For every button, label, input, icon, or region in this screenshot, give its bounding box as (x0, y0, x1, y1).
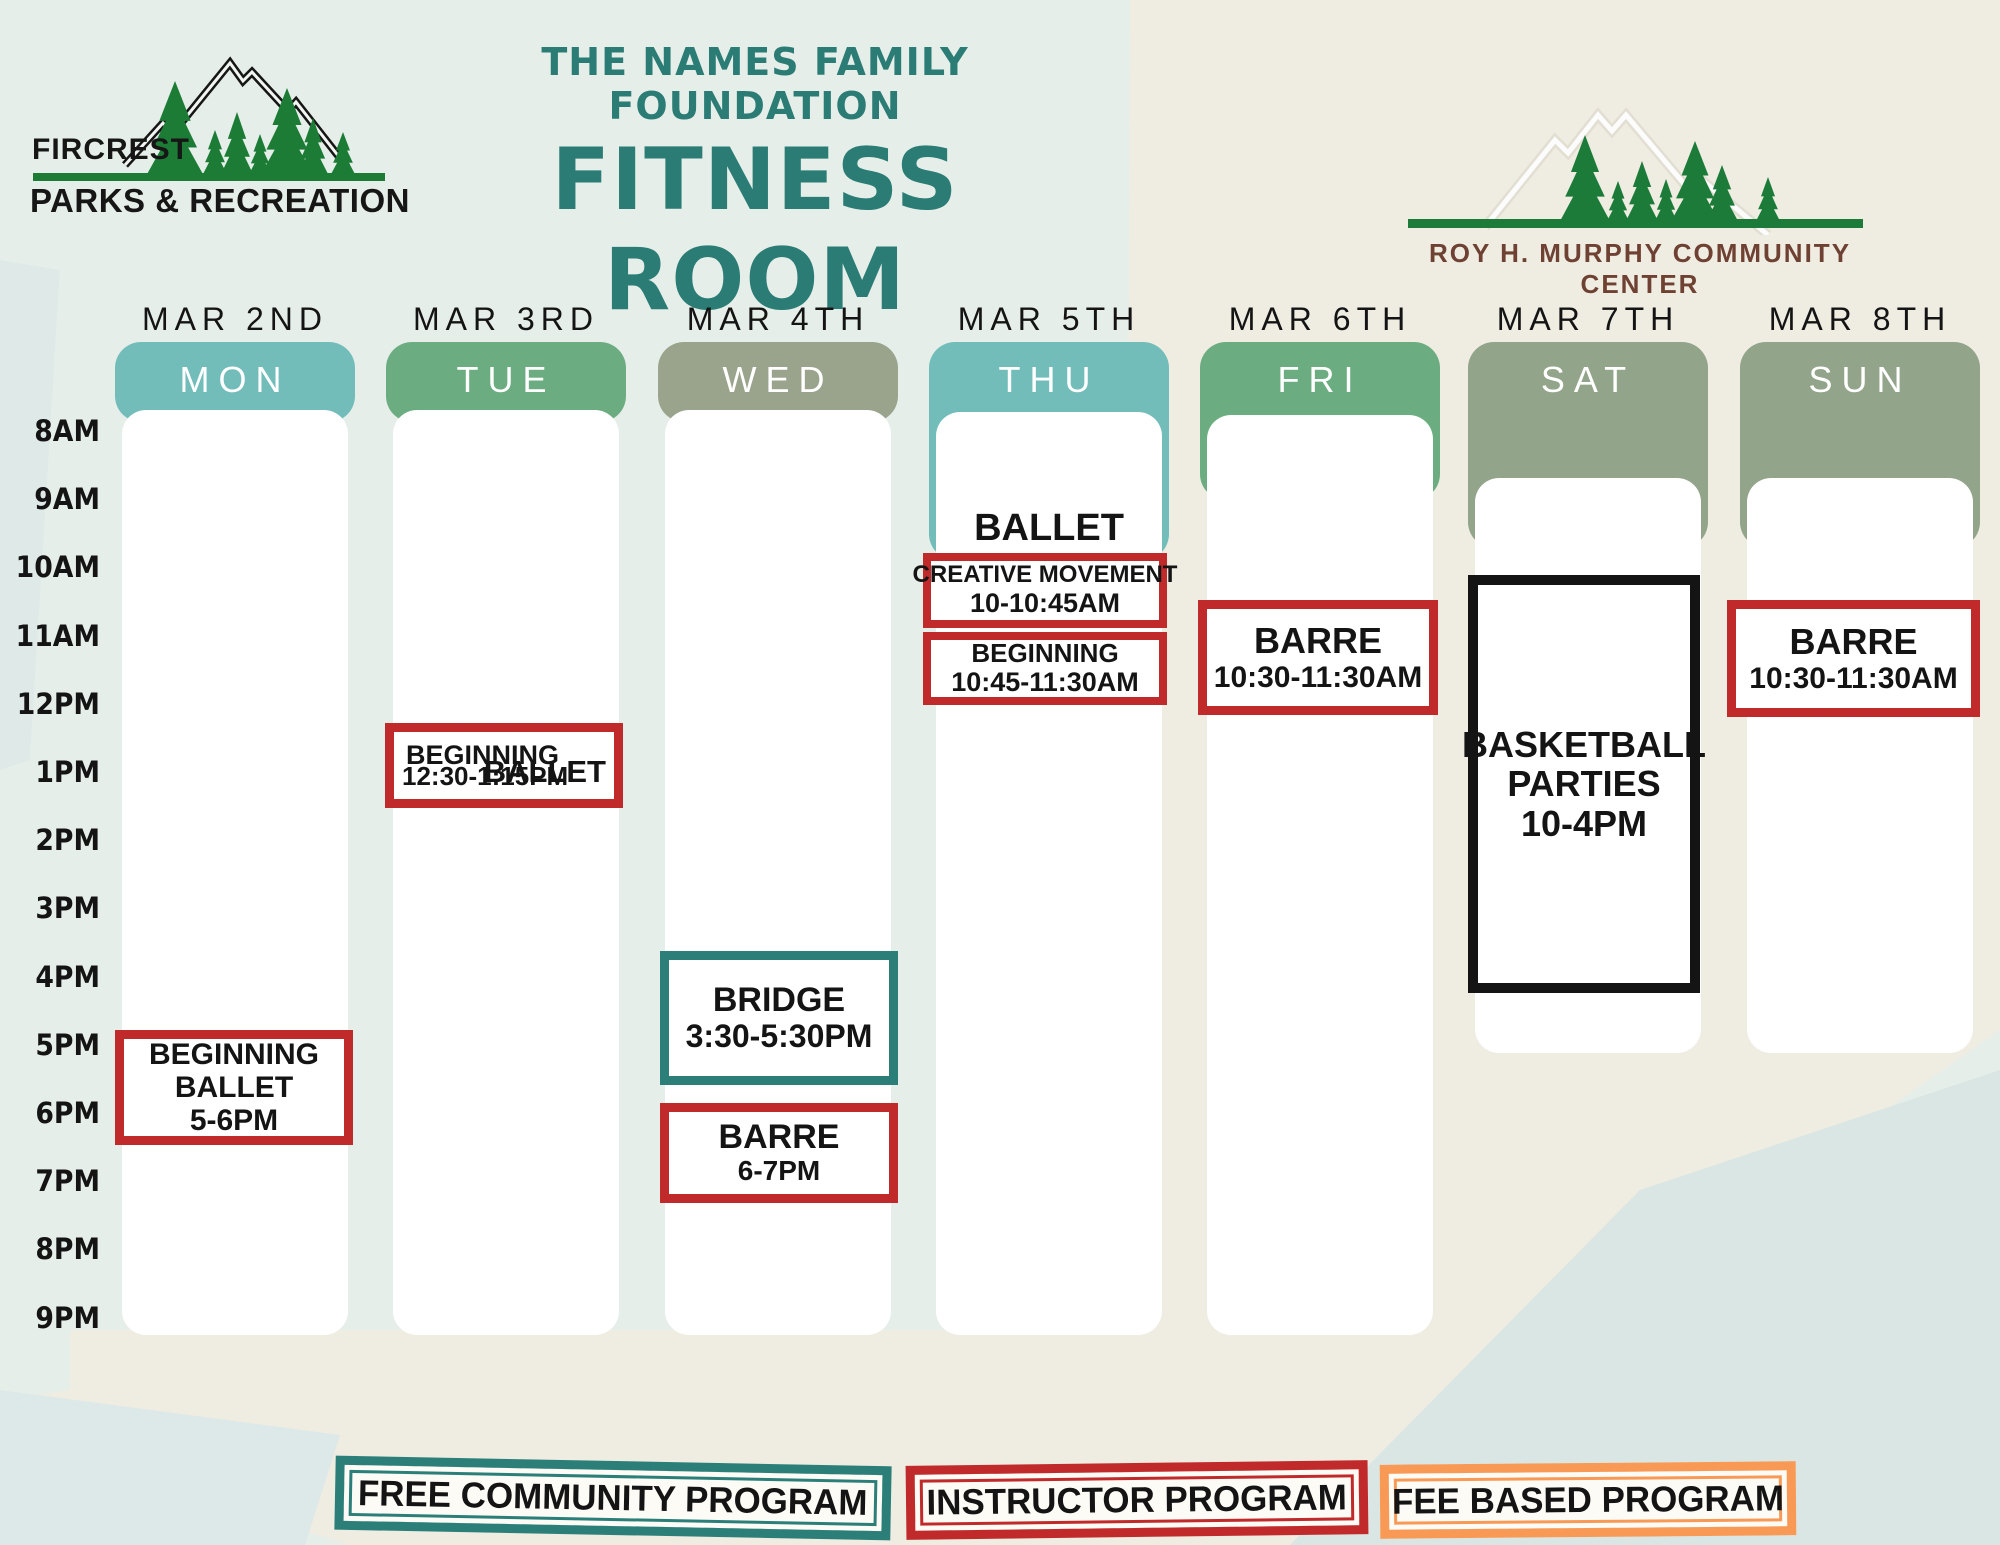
legend-instructor-program: INSTRUCTOR PROGRAM (906, 1460, 1369, 1540)
legend-free-community-program: FREE COMMUNITY PROGRAM (334, 1456, 891, 1541)
legend-fee-based-program: FEE BASED PROGRAM (1380, 1461, 1797, 1539)
legend-label: FREE COMMUNITY PROGRAM (358, 1472, 868, 1524)
legend-label: INSTRUCTOR PROGRAM (927, 1476, 1348, 1523)
fitness-room-schedule-poster: FIRCREST PARKS & RECREATION THE NAMES FA… (0, 0, 2000, 1545)
program-legend: FREE COMMUNITY PROGRAMINSTRUCTOR PROGRAM… (0, 0, 2000, 1545)
legend-label: FEE BASED PROGRAM (1392, 1477, 1784, 1522)
